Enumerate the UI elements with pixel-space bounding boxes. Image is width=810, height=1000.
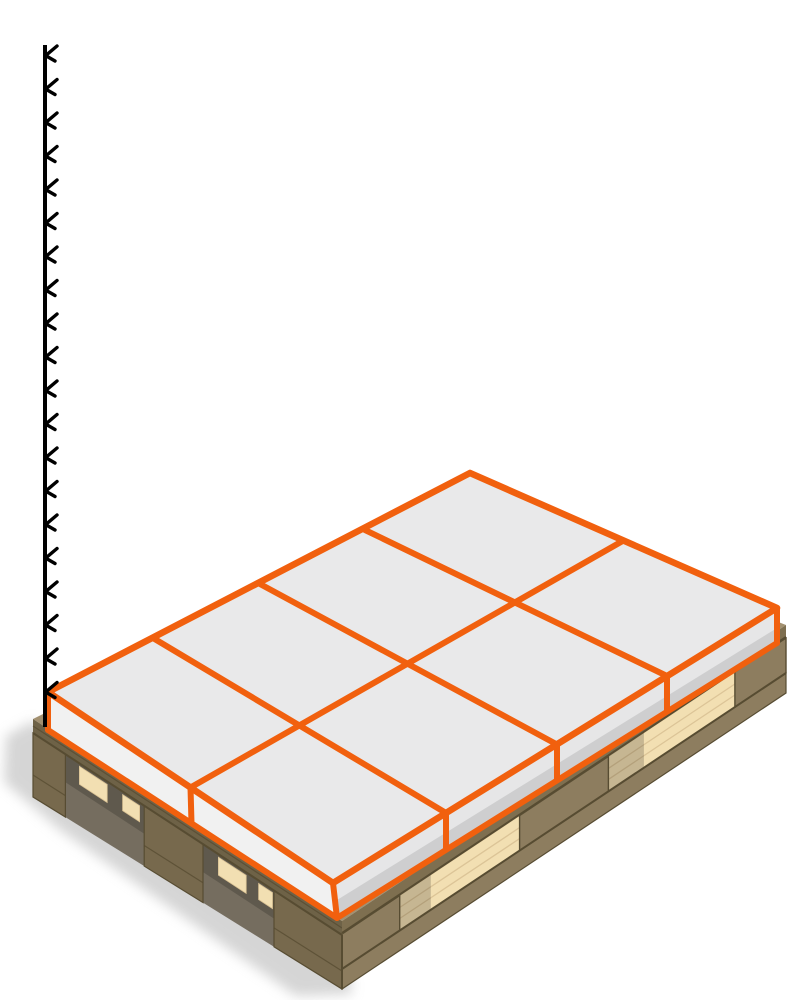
box-vertical-edge <box>191 788 192 824</box>
3d-viewport[interactable] <box>0 0 810 1000</box>
pallet-render <box>0 0 810 1000</box>
